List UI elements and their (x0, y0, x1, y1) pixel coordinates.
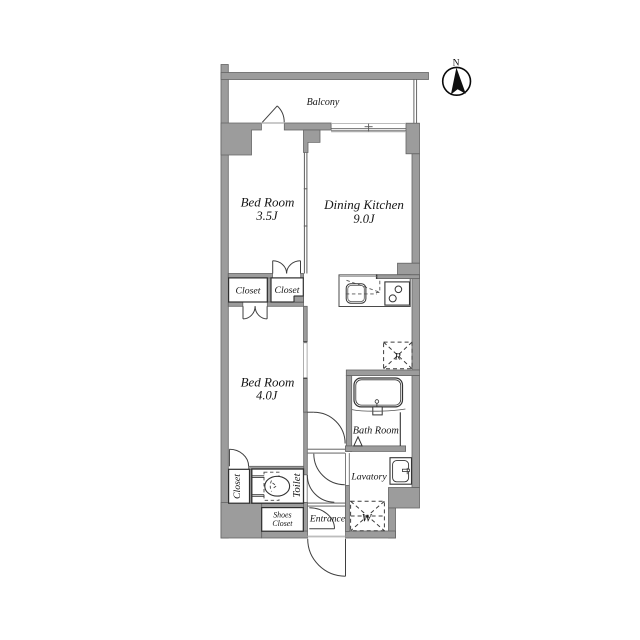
svg-text:Bath Room: Bath Room (353, 425, 399, 436)
svg-text:Closet: Closet (272, 519, 293, 528)
svg-text:W: W (362, 510, 373, 524)
svg-text:Closet: Closet (235, 286, 260, 297)
svg-text:Bed Room: Bed Room (241, 195, 295, 210)
svg-text:9.0J: 9.0J (353, 212, 376, 226)
svg-text:3.5J: 3.5J (255, 209, 279, 223)
svg-text:Toilet: Toilet (291, 472, 303, 497)
svg-text:Bed Room: Bed Room (241, 375, 295, 390)
svg-text:Lavatory: Lavatory (350, 472, 387, 483)
svg-text:Entrance: Entrance (309, 513, 346, 524)
svg-text:4.0J: 4.0J (256, 389, 279, 403)
svg-text:R: R (394, 352, 401, 363)
svg-text:Dining Kitchen: Dining Kitchen (323, 197, 404, 212)
svg-text:Closet: Closet (232, 474, 243, 499)
svg-text:Closet: Closet (274, 285, 299, 296)
svg-text:Balcony: Balcony (307, 97, 340, 108)
svg-text:N: N (453, 59, 460, 69)
